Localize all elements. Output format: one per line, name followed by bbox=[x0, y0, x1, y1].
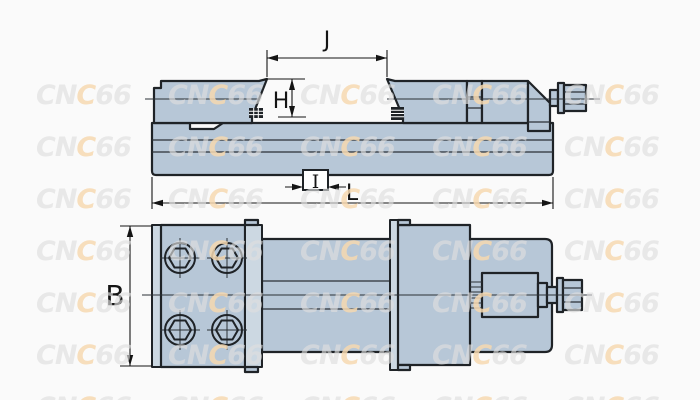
fixed-jaw-plate-plan bbox=[152, 220, 262, 372]
screw-connector-side bbox=[467, 81, 482, 123]
hex-nut-side bbox=[564, 85, 586, 111]
dimension-B-label: B bbox=[105, 279, 124, 312]
vise-technical-drawing-page: J H I L bbox=[0, 0, 700, 400]
dimension-L-label: L bbox=[346, 181, 359, 206]
dimension-J-label: J bbox=[322, 28, 331, 53]
end-bracket-side bbox=[528, 81, 550, 131]
screw-housing-side bbox=[482, 81, 528, 123]
plan-view bbox=[142, 220, 592, 372]
dimension-H-label: H bbox=[273, 89, 290, 114]
side-view bbox=[145, 79, 600, 190]
dimension-H: H bbox=[264, 79, 306, 117]
vise-technical-drawing: J H I L bbox=[0, 0, 700, 400]
fixed-jaw-insert bbox=[249, 108, 263, 118]
vise-body-side bbox=[152, 123, 553, 175]
dimension-B: B bbox=[105, 226, 152, 366]
dimension-I-label: I bbox=[312, 171, 320, 193]
dimension-L: L bbox=[152, 177, 553, 209]
movable-jaw-spring bbox=[391, 107, 404, 120]
screw-shaft-step bbox=[550, 90, 558, 106]
dimension-J: J bbox=[267, 28, 387, 77]
